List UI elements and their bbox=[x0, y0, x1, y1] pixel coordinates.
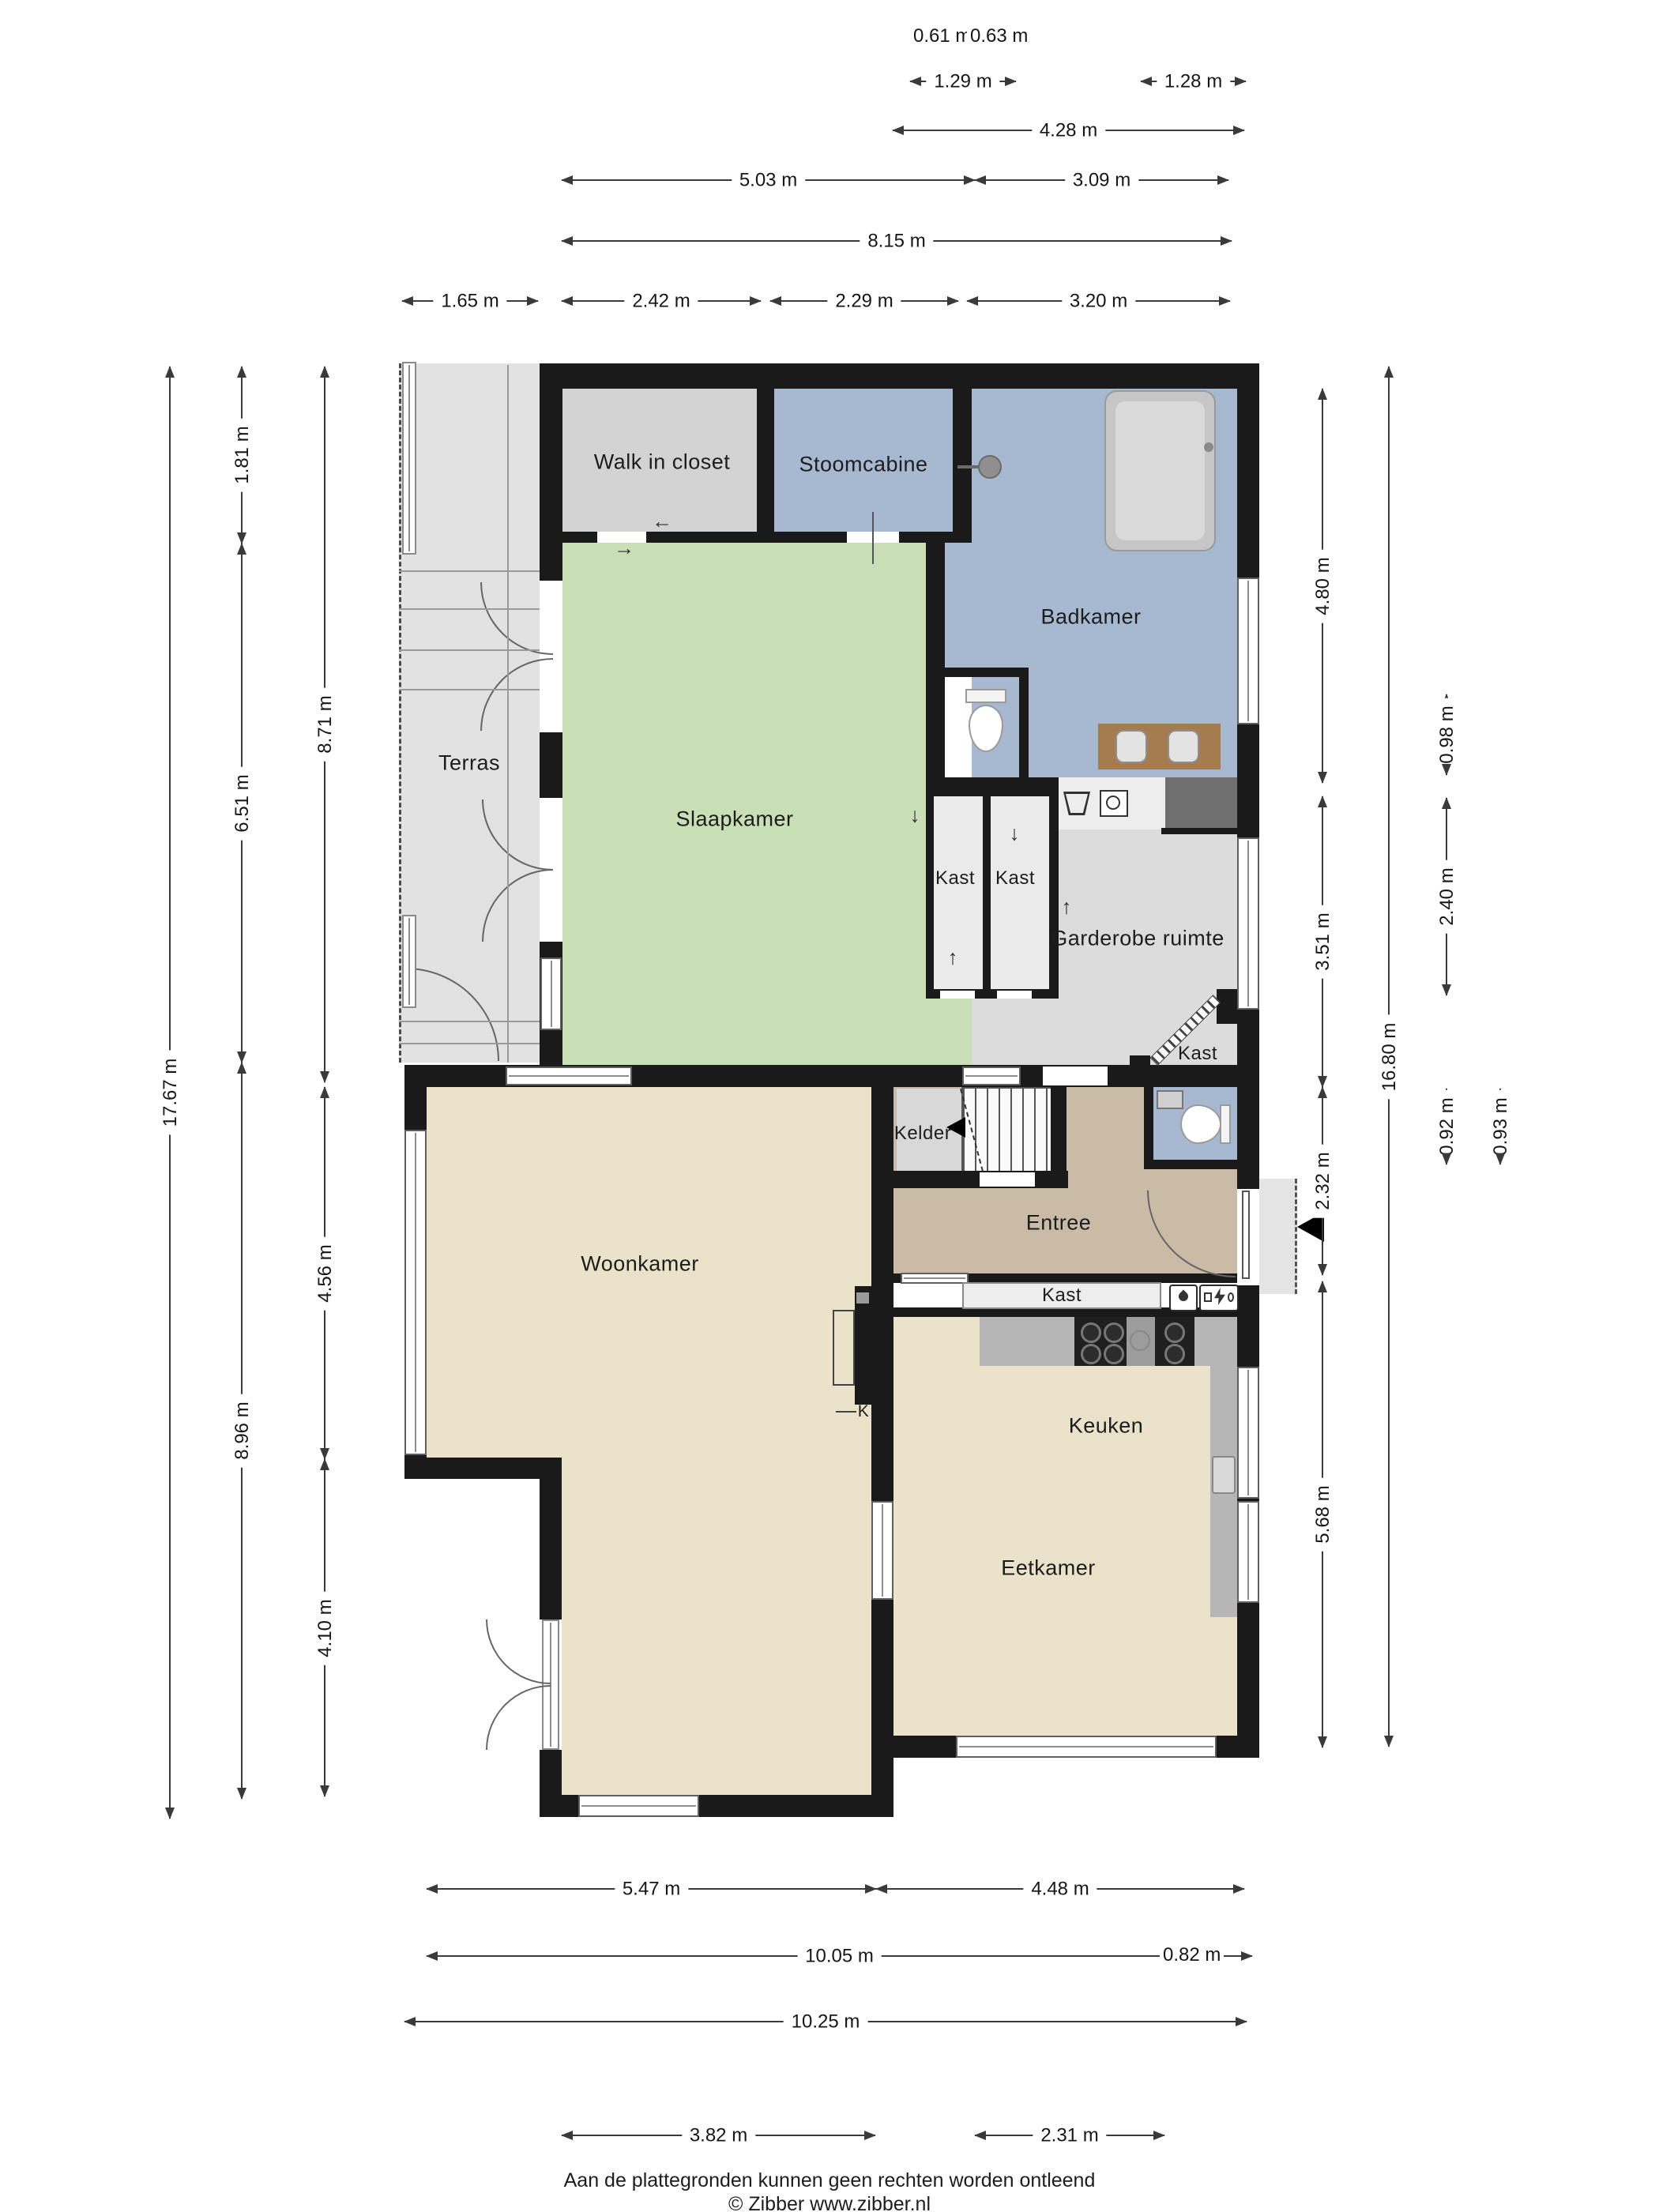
wall-top bbox=[540, 363, 1259, 389]
woonkamer-left-window bbox=[404, 1130, 427, 1455]
garderobe-window bbox=[1237, 837, 1259, 1010]
terras-post-top bbox=[402, 362, 416, 555]
copyright-text: © Zibber www.zibber.nl bbox=[0, 2193, 1659, 2212]
terras-step-5 bbox=[399, 1021, 540, 1022]
dim-line: 2.40 m bbox=[1446, 798, 1447, 995]
room-label-walk-in-closet: Walk in closet bbox=[594, 450, 731, 475]
kast-b-area bbox=[991, 796, 1049, 989]
dim-line: 1.65 m bbox=[402, 300, 538, 302]
room-label-kast-b: Kast bbox=[995, 867, 1035, 890]
keuken-eetkamer-area bbox=[893, 1307, 1237, 1736]
direction-arrow: ← bbox=[652, 510, 672, 534]
room-label-slaapkamer: Slaapkamer bbox=[675, 807, 793, 832]
dim-line: 3.20 m bbox=[967, 300, 1230, 302]
french-door-leaf-a bbox=[486, 1619, 551, 1684]
dim-line: 2.29 m bbox=[770, 300, 958, 302]
keuken-window-1 bbox=[1237, 1367, 1259, 1499]
dim-line: 8.71 m bbox=[324, 367, 325, 1082]
dim-line: 4.28 m bbox=[893, 130, 1244, 131]
entree-pass-window bbox=[901, 1273, 969, 1284]
wall-step bbox=[404, 1458, 562, 1479]
wall-kast-right bbox=[1049, 796, 1059, 989]
wall-toilet2-left bbox=[1144, 1087, 1153, 1169]
terras-window bbox=[540, 957, 562, 1030]
wall-stairs-right bbox=[1051, 1087, 1066, 1171]
dim-line: 0.92 m bbox=[1446, 1089, 1447, 1164]
keuken-window-2 bbox=[1237, 1501, 1259, 1603]
dim-line: 0.98 m bbox=[1446, 694, 1447, 775]
wall-closet-div1 bbox=[757, 389, 774, 543]
toilet2-tank bbox=[1220, 1104, 1231, 1144]
direction-arrow: ↓ bbox=[1010, 822, 1020, 846]
room-label-badkamer: Badkamer bbox=[1040, 605, 1141, 630]
room-label-kast-c: Kast bbox=[1178, 1043, 1217, 1065]
room-label-kast-d: Kast bbox=[1042, 1285, 1082, 1307]
room-label-kelder: Kelder bbox=[894, 1123, 951, 1145]
dim-line: 1.29 m bbox=[910, 81, 1016, 82]
terras-step-4 bbox=[399, 689, 540, 690]
room-label-keuken: Keuken bbox=[1069, 1414, 1144, 1439]
garderobe-area-ext bbox=[972, 999, 1059, 1065]
terras-step-1 bbox=[399, 570, 540, 572]
laundry-counter-dark bbox=[1165, 777, 1237, 829]
dim-line: 5.03 m bbox=[562, 179, 975, 181]
kast-a-door bbox=[940, 991, 975, 999]
entrance-stoop bbox=[1259, 1179, 1297, 1294]
room-label-garderobe: Garderobe ruimte bbox=[1051, 927, 1224, 951]
woonkamer-top-window bbox=[506, 1066, 632, 1085]
slaapkamer-area-ext bbox=[926, 999, 972, 1065]
vanity-counter bbox=[1098, 724, 1221, 769]
direction-arrow: ↑ bbox=[948, 946, 958, 970]
woonkamer-area-lower bbox=[562, 1458, 871, 1795]
slaapkamer-area bbox=[562, 543, 926, 1065]
disclaimer-text: Aan de plattegronden kunnen geen rechten… bbox=[0, 2169, 1659, 2192]
dim-line: 3.51 m bbox=[1322, 796, 1323, 1087]
front-door-leaf bbox=[1242, 1191, 1250, 1279]
dim-line: 3.09 m bbox=[975, 179, 1228, 181]
shower-head-icon bbox=[978, 455, 1002, 479]
shower-arm bbox=[957, 465, 980, 468]
wall-toilet2-bottom bbox=[1144, 1160, 1237, 1169]
wall-toilet1-right bbox=[1019, 668, 1029, 778]
dim-label: 0.82 m bbox=[1160, 1944, 1224, 1966]
direction-arrow: ↓ bbox=[910, 803, 920, 828]
dim-label: 0.61 m bbox=[910, 25, 974, 47]
dim-line: 8.15 m bbox=[562, 240, 1232, 242]
vanity-sink-1 bbox=[1115, 730, 1147, 763]
terras-step-3 bbox=[399, 649, 540, 651]
stove-icon bbox=[1074, 1317, 1194, 1366]
bathtub-faucet bbox=[1204, 442, 1213, 452]
dim-line: 5.68 m bbox=[1322, 1281, 1323, 1747]
laundry-wall bbox=[1161, 828, 1237, 834]
kast-a-area bbox=[934, 796, 983, 989]
dim-line: 8.96 m bbox=[241, 1063, 243, 1799]
dim-line: 2.31 m bbox=[975, 2135, 1164, 2136]
wall-slaap-bad bbox=[926, 543, 945, 781]
dim-line: 3.82 m bbox=[562, 2135, 875, 2136]
bathtub-icon bbox=[1104, 390, 1216, 551]
dim-line: 4.10 m bbox=[324, 1459, 325, 1796]
stoomcabine-door-leaf bbox=[872, 512, 874, 564]
floor-plan-page: → ← ↓ ↑ ↓ ↑ Terras Walk in closet Stoomc… bbox=[0, 0, 1659, 2212]
room-label-kast-a: Kast bbox=[935, 867, 975, 890]
wall-kast-left bbox=[926, 796, 934, 989]
toilet1-tank bbox=[965, 689, 1006, 703]
badkamer-window bbox=[1237, 577, 1259, 724]
dim-line: 4.56 m bbox=[324, 1087, 325, 1459]
badkamer-area-ext bbox=[945, 543, 1027, 675]
dim-line: 10.05 m bbox=[427, 1955, 1252, 1957]
kelder-door bbox=[980, 1172, 1035, 1187]
terras-step-2 bbox=[399, 608, 540, 610]
toilet2-sink bbox=[1157, 1090, 1183, 1109]
dim-line: 0.93 m bbox=[1499, 1089, 1501, 1164]
dim-line: 1.28 m bbox=[1141, 81, 1246, 82]
terras-deck-line-v bbox=[507, 365, 509, 1063]
bathtub-inner bbox=[1115, 401, 1205, 540]
woonkamer-bottom-window bbox=[578, 1795, 699, 1817]
dim-line: 5.47 m bbox=[427, 1888, 876, 1890]
fireplace-vent bbox=[856, 1292, 869, 1303]
terras-post-mid bbox=[402, 915, 416, 1008]
garderobe-entree-door bbox=[1043, 1066, 1108, 1085]
wall-terras-2 bbox=[540, 731, 562, 799]
eetkamer-bottom-window bbox=[956, 1736, 1217, 1758]
electric-meter-icon bbox=[1199, 1285, 1239, 1311]
terras-step-6 bbox=[399, 1043, 540, 1044]
vanity-sink-2 bbox=[1168, 730, 1199, 763]
dim-line: 1.81 m bbox=[241, 367, 243, 544]
room-label-woonkamer: Woonkamer bbox=[581, 1252, 699, 1277]
fireplace-niche bbox=[833, 1310, 855, 1386]
wall-divider bbox=[871, 1087, 893, 1817]
fireplace-tick bbox=[836, 1411, 856, 1413]
wall-kast-c-jamb1 bbox=[1217, 989, 1237, 1024]
wall-toilet1-top bbox=[937, 668, 1027, 677]
wall-mid-horizontal bbox=[926, 777, 1059, 796]
room-label-fireplace: K bbox=[858, 1402, 870, 1421]
room-label-entree: Entree bbox=[1026, 1211, 1092, 1236]
direction-arrow: ↑ bbox=[1062, 895, 1072, 920]
french-door-leaf-b bbox=[486, 1685, 551, 1750]
dim-line: 10.25 m bbox=[404, 2021, 1247, 2022]
fireplace-body bbox=[855, 1286, 871, 1405]
dim-line: 6.51 m bbox=[241, 544, 243, 1063]
wall-terras-1 bbox=[540, 389, 562, 581]
dim-line: 4.80 m bbox=[1322, 389, 1323, 783]
wall-kast-div bbox=[983, 796, 991, 989]
dim-line: 4.48 m bbox=[876, 1888, 1244, 1890]
dim-line: 17.67 m bbox=[169, 367, 171, 1819]
direction-arrow: → bbox=[614, 536, 634, 561]
dim-line: 2.32 m bbox=[1322, 1087, 1323, 1275]
kast-b-door bbox=[997, 991, 1032, 999]
room-label-terras: Terras bbox=[438, 751, 500, 776]
room-label-stoomcabine: Stoomcabine bbox=[799, 453, 927, 477]
dim-line: 2.42 m bbox=[562, 300, 761, 302]
stairs-area bbox=[961, 1087, 1054, 1174]
stairs-top-opening bbox=[962, 1066, 1021, 1085]
kitchen-sink bbox=[1212, 1456, 1236, 1494]
room-label-eetkamer: Eetkamer bbox=[1001, 1556, 1096, 1581]
dim-label: 0.63 m bbox=[967, 25, 1031, 47]
water-meter-icon bbox=[1169, 1285, 1198, 1311]
dim-line: 16.80 m bbox=[1388, 367, 1390, 1747]
washing-machine-icon bbox=[1100, 790, 1128, 817]
divider-opening bbox=[871, 1501, 893, 1600]
wall-kast-c-jamb2 bbox=[1130, 1055, 1150, 1066]
